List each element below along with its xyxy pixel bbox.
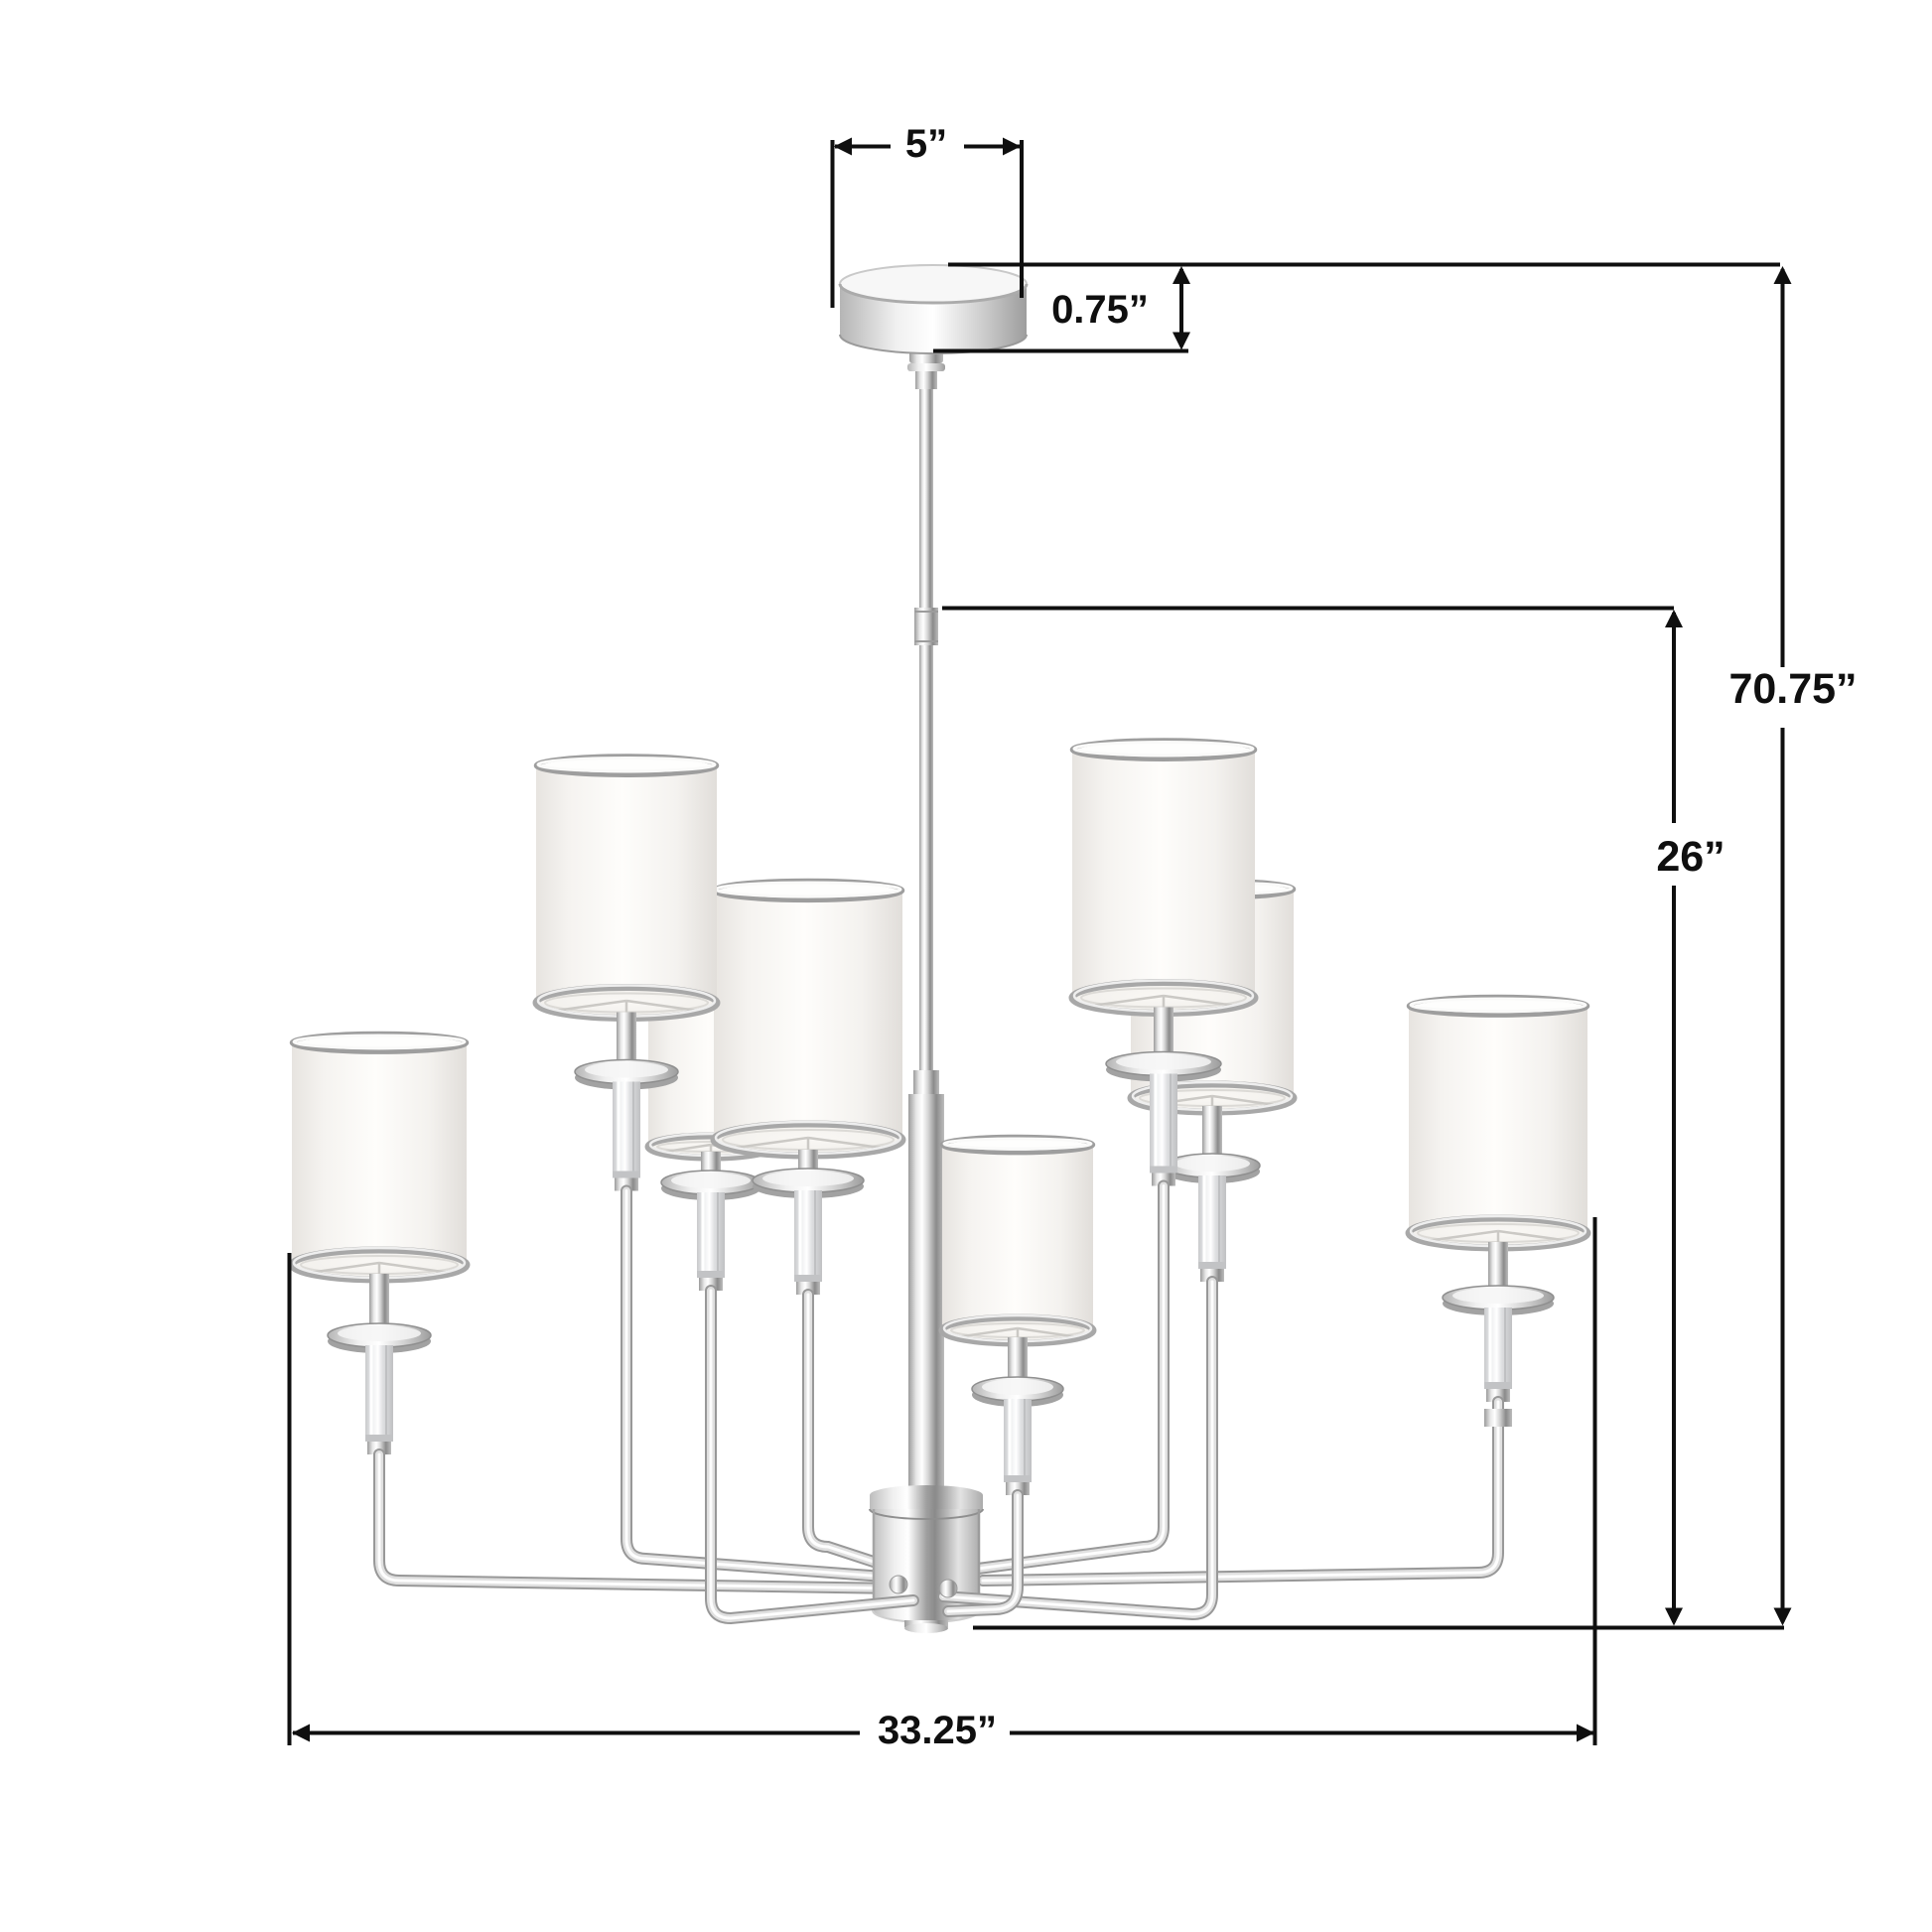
svg-text:26”: 26” <box>1656 833 1725 881</box>
svg-text:70.75”: 70.75” <box>1728 665 1857 713</box>
svg-text:5”: 5” <box>905 122 947 166</box>
svg-text:0.75”: 0.75” <box>1051 288 1149 332</box>
svg-text:33.25”: 33.25” <box>878 1709 997 1752</box>
